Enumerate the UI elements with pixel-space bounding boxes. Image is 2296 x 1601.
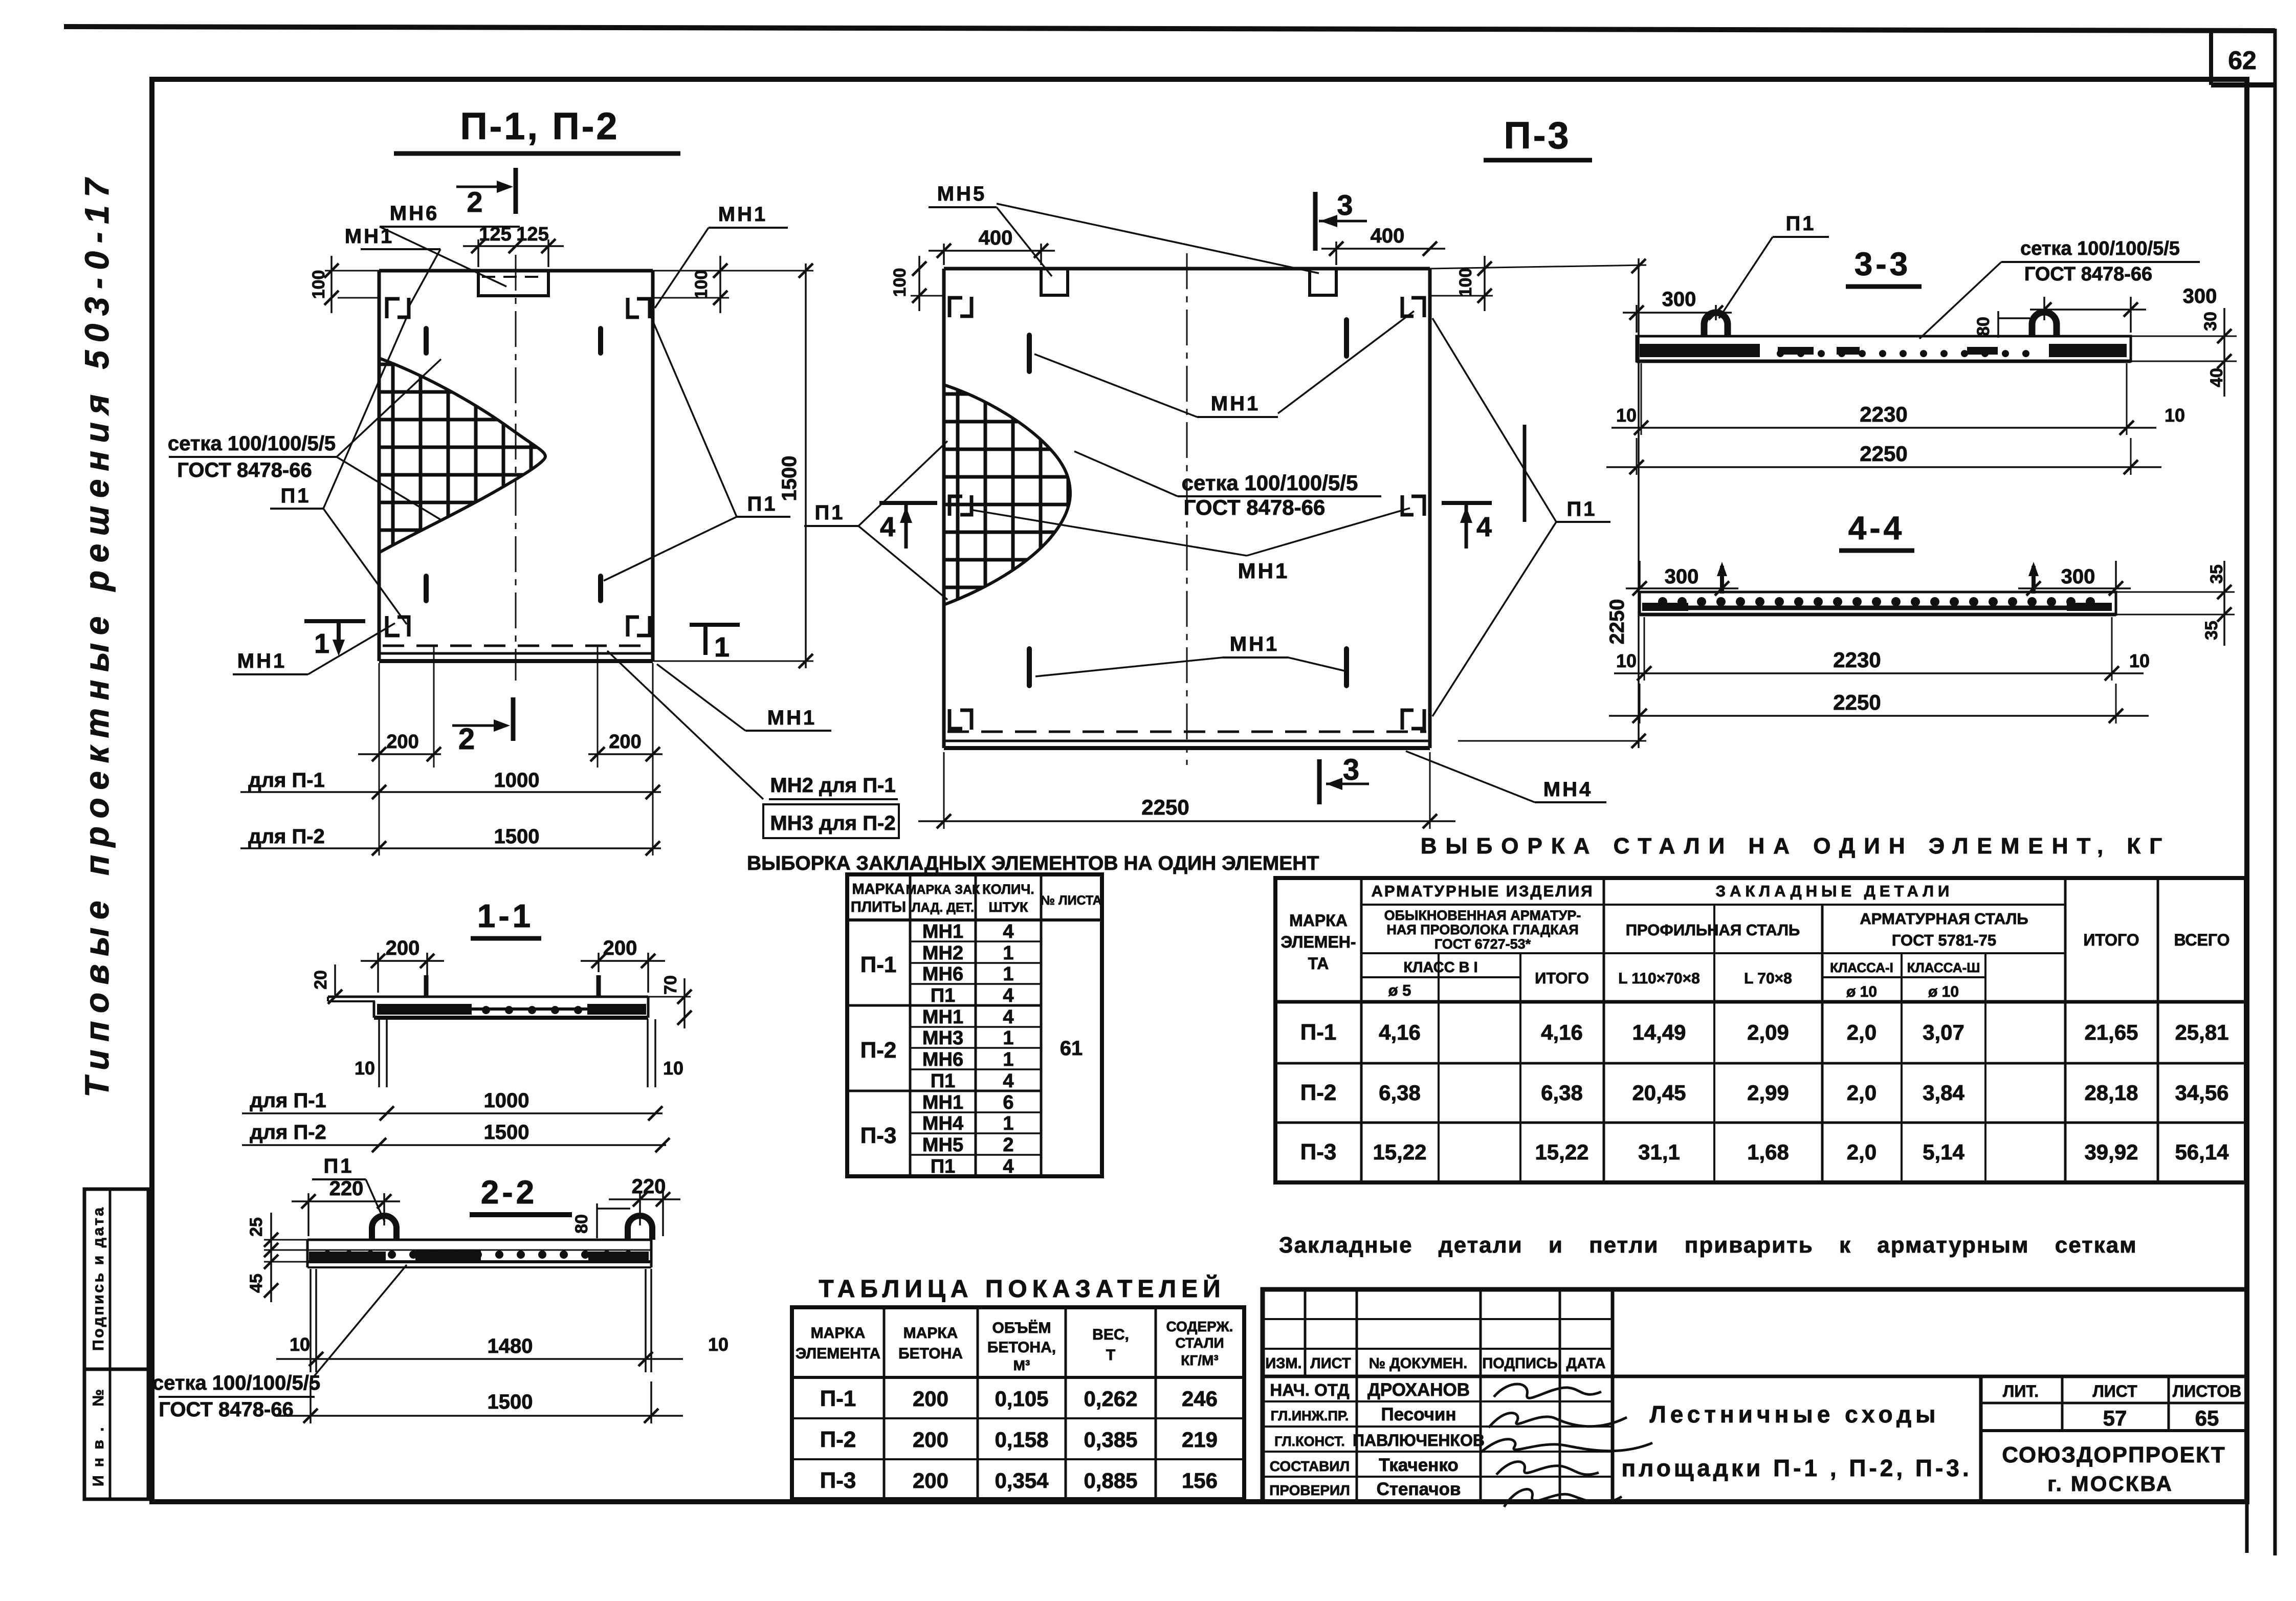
svg-text:ИТОГО: ИТОГО: [2083, 931, 2139, 949]
svg-text:МН1: МН1: [237, 650, 286, 672]
svg-text:ø 10: ø 10: [1846, 983, 1877, 1000]
svg-text:10: 10: [708, 1334, 728, 1355]
svg-text:45: 45: [247, 1274, 266, 1293]
svg-text:1500: 1500: [484, 1121, 529, 1144]
svg-text:ОБЫКНОВЕННАЯ АРМАТУР-: ОБЫКНОВЕННАЯ АРМАТУР-: [1384, 908, 1581, 923]
svg-text:300: 300: [1662, 288, 1696, 311]
svg-text:1000: 1000: [484, 1089, 529, 1112]
svg-text:ЛАД. ДЕТ.: ЛАД. ДЕТ.: [912, 901, 974, 915]
svg-text:МН1: МН1: [345, 225, 394, 248]
svg-text:2250: 2250: [1141, 795, 1189, 819]
svg-text:10: 10: [2165, 405, 2185, 426]
svg-text:1: 1: [1003, 1049, 1013, 1070]
svg-text:П-1: П-1: [820, 1386, 856, 1411]
svg-text:0,105: 0,105: [995, 1387, 1048, 1411]
svg-text:220: 220: [329, 1177, 364, 1200]
svg-text:300: 300: [1665, 565, 1699, 588]
svg-text:Т: Т: [1106, 1347, 1115, 1364]
svg-text:ПОДПИСЬ: ПОДПИСЬ: [1482, 1355, 1557, 1372]
svg-text:Подпись и дата: Подпись и дата: [90, 1208, 107, 1351]
svg-text:2,09: 2,09: [1747, 1020, 1789, 1044]
svg-text:МАРКА: МАРКА: [852, 881, 904, 897]
svg-text:1500: 1500: [488, 1391, 533, 1413]
svg-text:ЛИСТ: ЛИСТ: [1310, 1355, 1351, 1372]
svg-text:МН1: МН1: [1211, 392, 1260, 415]
svg-text:ГЛ.ИНЖ.ПР.: ГЛ.ИНЖ.ПР.: [1271, 1408, 1349, 1423]
svg-text:30: 30: [2201, 312, 2220, 331]
svg-text:ОБЪЁМ: ОБЪЁМ: [992, 1320, 1051, 1336]
svg-text:10: 10: [1616, 405, 1637, 426]
svg-text:1: 1: [1003, 1027, 1013, 1049]
svg-text:ø 5: ø 5: [1388, 981, 1411, 999]
svg-text:1500: 1500: [778, 456, 801, 501]
svg-text:П1: П1: [1567, 498, 1597, 520]
svg-text:МН4: МН4: [922, 1113, 963, 1134]
svg-text:25: 25: [247, 1217, 266, 1237]
svg-text:65: 65: [2195, 1406, 2219, 1430]
svg-text:МН6: МН6: [390, 202, 439, 225]
svg-text:МН1: МН1: [1238, 559, 1290, 583]
svg-text:6: 6: [1003, 1092, 1013, 1113]
svg-text:ЛИТ.: ЛИТ.: [2003, 1382, 2039, 1400]
svg-text:ЛИСТОВ: ЛИСТОВ: [2173, 1382, 2242, 1400]
svg-text:L 110×70×8: L 110×70×8: [1618, 970, 1700, 987]
svg-text:МН2 для П-1: МН2 для П-1: [770, 774, 895, 797]
svg-text:ГОСТ 6727-53*: ГОСТ 6727-53*: [1434, 936, 1531, 952]
svg-text:62: 62: [2228, 46, 2257, 75]
svg-text:П1: П1: [931, 985, 955, 1006]
svg-text:для П-1: для П-1: [250, 1089, 326, 1112]
svg-text:35: 35: [2202, 621, 2221, 640]
svg-text:1: 1: [314, 628, 329, 659]
svg-text:МАРКА ЗАК: МАРКА ЗАК: [906, 883, 981, 897]
svg-text:20,45: 20,45: [1632, 1081, 1686, 1105]
svg-text:ИТОГО: ИТОГО: [1535, 969, 1589, 987]
svg-text:ШТУК: ШТУК: [989, 900, 1028, 915]
svg-text:220: 220: [632, 1175, 666, 1198]
svg-text:300: 300: [2183, 285, 2217, 308]
svg-text:21,65: 21,65: [2084, 1020, 2138, 1044]
svg-text:ЗАКЛАДНЫЕ ДЕТАЛИ: ЗАКЛАДНЫЕ ДЕТАЛИ: [1716, 882, 1954, 900]
svg-text:1-1: 1-1: [477, 897, 534, 934]
svg-text:Лестничные сходы: Лестничные сходы: [1650, 1401, 1940, 1428]
svg-text:4: 4: [1003, 1156, 1013, 1177]
svg-text:2,0: 2,0: [1847, 1081, 1876, 1105]
svg-text:СОЮЗДОРПРОЕКТ: СОЮЗДОРПРОЕКТ: [2002, 1442, 2226, 1467]
svg-text:П1: П1: [324, 1155, 354, 1177]
svg-text:200: 200: [603, 937, 637, 959]
svg-text:300: 300: [2061, 565, 2095, 588]
svg-text:КГ/М³: КГ/М³: [1181, 1352, 1218, 1368]
svg-text:П-2: П-2: [860, 1038, 897, 1063]
svg-text:П-1: П-1: [1300, 1020, 1337, 1045]
svg-text:П-3: П-3: [1300, 1139, 1337, 1165]
svg-text:3: 3: [1337, 189, 1353, 221]
svg-text:4,16: 4,16: [1379, 1020, 1421, 1044]
svg-text:МН6: МН6: [922, 963, 963, 985]
svg-text:ТАБЛИЦА ПОКАЗАТЕЛЕЙ: ТАБЛИЦА ПОКАЗАТЕЛЕЙ: [819, 1275, 1225, 1303]
svg-text:МН1: МН1: [1230, 633, 1279, 655]
svg-text:5,14: 5,14: [1923, 1140, 1964, 1164]
svg-text:МН3: МН3: [922, 1027, 963, 1049]
svg-text:МН6: МН6: [922, 1049, 963, 1070]
svg-text:МАРКА: МАРКА: [903, 1325, 958, 1342]
svg-text:70: 70: [661, 975, 680, 995]
svg-text:МН3 для П-2: МН3 для П-2: [770, 812, 895, 835]
svg-text:МАРКА: МАРКА: [811, 1325, 866, 1342]
svg-text:для П-2: для П-2: [250, 1121, 326, 1144]
svg-text:200: 200: [609, 731, 641, 753]
svg-text:56,14: 56,14: [2175, 1140, 2229, 1164]
svg-text:1000: 1000: [494, 769, 540, 792]
svg-text:4: 4: [880, 512, 895, 542]
svg-text:2: 2: [458, 722, 475, 756]
svg-text:МАРКА: МАРКА: [1289, 911, 1348, 930]
svg-text:П-2: П-2: [1300, 1080, 1337, 1105]
svg-text:2230: 2230: [1860, 402, 1907, 426]
svg-text:0,262: 0,262: [1084, 1387, 1137, 1411]
svg-text:35: 35: [2207, 564, 2226, 584]
svg-text:ВЫБОРКА СТАЛИ НА ОДИН ЭЛЕМЕНТ: ВЫБОРКА СТАЛИ НА ОДИН ЭЛЕМЕНТ, КГ: [1421, 834, 2171, 859]
svg-text:КОЛИЧ.: КОЛИЧ.: [982, 882, 1034, 897]
svg-text:3: 3: [1343, 753, 1359, 786]
svg-text:МН4: МН4: [1543, 778, 1593, 801]
svg-text:4: 4: [1003, 1006, 1013, 1028]
svg-text:СОСТАВИЛ: СОСТАВИЛ: [1270, 1458, 1350, 1474]
svg-text:10: 10: [355, 1058, 375, 1079]
svg-text:10: 10: [290, 1334, 310, 1355]
svg-text:г. МОСКВА: г. МОСКВА: [2047, 1472, 2173, 1496]
svg-text:№ ЛИСТА: № ЛИСТА: [1041, 893, 1102, 908]
svg-text:10: 10: [1616, 650, 1637, 671]
svg-text:площадки П-1 , П-2, П-3.: площадки П-1 , П-2, П-3.: [1621, 1455, 1972, 1481]
svg-text:34,56: 34,56: [2175, 1081, 2228, 1105]
svg-text:ЭЛЕМЕН-: ЭЛЕМЕН-: [1281, 933, 1356, 951]
svg-text:П1: П1: [747, 493, 778, 515]
svg-text:ПЛИТЫ: ПЛИТЫ: [851, 899, 906, 915]
svg-text:ГОСТ 8478-66: ГОСТ 8478-66: [177, 459, 312, 481]
svg-text:14,49: 14,49: [1632, 1020, 1686, 1044]
svg-text:1: 1: [1003, 942, 1013, 964]
svg-text:200: 200: [913, 1387, 948, 1411]
svg-text:4,16: 4,16: [1541, 1020, 1583, 1044]
svg-text:ПАВЛЮЧЕНКОВ: ПАВЛЮЧЕНКОВ: [1353, 1431, 1485, 1450]
svg-text:сетка 100/100/5/5: сетка 100/100/5/5: [2020, 238, 2180, 259]
svg-text:4: 4: [1476, 512, 1492, 542]
svg-text:100: 100: [1456, 268, 1475, 297]
svg-text:ГЛ.КОНСТ.: ГЛ.КОНСТ.: [1274, 1434, 1345, 1449]
svg-text:4: 4: [1003, 985, 1013, 1006]
svg-text:2: 2: [1003, 1134, 1013, 1156]
svg-text:ИЗМ.: ИЗМ.: [1265, 1355, 1301, 1372]
svg-text:2,99: 2,99: [1747, 1081, 1789, 1105]
svg-text:П-3: П-3: [820, 1468, 856, 1493]
svg-text:400: 400: [1371, 225, 1405, 247]
svg-text:КЛАСС В I: КЛАСС В I: [1403, 959, 1477, 976]
svg-text:L 70×8: L 70×8: [1744, 970, 1792, 987]
svg-text:ГОСТ 8478-66: ГОСТ 8478-66: [159, 1398, 294, 1421]
svg-text:200: 200: [386, 731, 418, 753]
svg-text:ПРОВЕРИЛ: ПРОВЕРИЛ: [1269, 1482, 1350, 1498]
svg-text:40: 40: [2207, 368, 2226, 387]
svg-text:25,81: 25,81: [2175, 1020, 2228, 1044]
svg-text:0,158: 0,158: [995, 1428, 1048, 1452]
svg-text:15,22: 15,22: [1373, 1140, 1426, 1164]
svg-text:6,38: 6,38: [1541, 1081, 1583, 1105]
svg-text:2: 2: [467, 186, 482, 218]
svg-text:П1: П1: [815, 501, 845, 524]
svg-text:АРМАТУРНЫЕ ИЗДЕЛИЯ: АРМАТУРНЫЕ ИЗДЕЛИЯ: [1371, 882, 1594, 900]
svg-text:МН5: МН5: [922, 1134, 963, 1156]
svg-text:400: 400: [979, 227, 1013, 249]
svg-text:ø 10: ø 10: [1928, 983, 1959, 1000]
svg-text:2250: 2250: [1860, 442, 1907, 466]
svg-text:ЭЛЕМЕНТА: ЭЛЕМЕНТА: [796, 1345, 880, 1362]
svg-text:ГОСТ 8478-66: ГОСТ 8478-66: [1184, 495, 1326, 519]
svg-text:КЛАССА-I: КЛАССА-I: [1830, 960, 1893, 975]
svg-text:6,38: 6,38: [1379, 1081, 1421, 1105]
svg-text:3-3: 3-3: [1855, 246, 1911, 282]
svg-text:П1: П1: [931, 1070, 955, 1092]
svg-text:Ткаченко: Ткаченко: [1379, 1455, 1459, 1475]
svg-text:125: 125: [516, 224, 548, 245]
svg-text:ТА: ТА: [1308, 954, 1329, 973]
svg-text:200: 200: [386, 937, 420, 959]
svg-text:2250: 2250: [1833, 690, 1881, 714]
svg-text:ДРОХАНОВ: ДРОХАНОВ: [1367, 1380, 1470, 1400]
svg-text:П1: П1: [1786, 212, 1816, 235]
svg-text:100: 100: [890, 268, 910, 297]
svg-text:БЕТОНА,: БЕТОНА,: [987, 1339, 1056, 1356]
svg-text:200: 200: [913, 1428, 948, 1452]
svg-text:МН1: МН1: [922, 921, 963, 942]
svg-text:КЛАССА-Ш: КЛАССА-Ш: [1907, 960, 1980, 975]
svg-text:П-3: П-3: [1504, 114, 1571, 157]
svg-text:МН1: МН1: [767, 707, 816, 729]
svg-text:0,885: 0,885: [1084, 1468, 1137, 1493]
svg-text:№ ДОКУМЕН.: № ДОКУМЕН.: [1369, 1355, 1468, 1372]
svg-text:П1: П1: [281, 485, 311, 507]
svg-text:П-1, П-2: П-1, П-2: [460, 105, 619, 147]
svg-text:ВЫБОРКА ЗАКЛАДНЫХ ЭЛЕМЕНТОВ НА: ВЫБОРКА ЗАКЛАДНЫХ ЭЛЕМЕНТОВ НА ОДИН ЭЛЕМ…: [747, 852, 1319, 874]
svg-text:1: 1: [1003, 1113, 1013, 1134]
svg-text:ДАТА: ДАТА: [1566, 1355, 1606, 1372]
svg-text:61: 61: [1060, 1037, 1083, 1060]
svg-text:ГОСТ 8478-66: ГОСТ 8478-66: [2024, 264, 2152, 285]
svg-text:31,1: 31,1: [1638, 1140, 1680, 1164]
svg-text:П-1: П-1: [860, 952, 897, 977]
svg-text:2250: 2250: [1606, 599, 1628, 645]
svg-text:57: 57: [2103, 1406, 2127, 1430]
svg-text:3,84: 3,84: [1923, 1081, 1964, 1105]
svg-text:200: 200: [913, 1468, 948, 1493]
svg-text:1: 1: [1003, 963, 1013, 985]
svg-text:ПРОФИЛЬНАЯ СТАЛЬ: ПРОФИЛЬНАЯ СТАЛЬ: [1626, 921, 1800, 939]
svg-text:2-2: 2-2: [481, 1174, 538, 1211]
svg-text:100: 100: [309, 270, 328, 299]
svg-text:МН1: МН1: [922, 1092, 963, 1113]
svg-text:10: 10: [2129, 650, 2150, 671]
svg-text:0,354: 0,354: [995, 1468, 1049, 1493]
svg-text:сетка 100/100/5/5: сетка 100/100/5/5: [168, 432, 336, 455]
svg-text:П-2: П-2: [820, 1427, 856, 1452]
svg-text:ГОСТ 5781-75: ГОСТ 5781-75: [1892, 931, 1996, 949]
svg-text:Песочин: Песочин: [1381, 1405, 1456, 1424]
svg-text:Закладные детали и петли п: Закладные детали и петли приварить к арм…: [1279, 1233, 2137, 1258]
svg-text:сетка 100/100/5/5: сетка 100/100/5/5: [1182, 471, 1358, 495]
svg-text:4: 4: [1003, 921, 1013, 942]
svg-text:сетка 100/100/5/5: сетка 100/100/5/5: [152, 1372, 320, 1394]
svg-text:НАЯ ПРОВОЛОКА ГЛАДКАЯ: НАЯ ПРОВОЛОКА ГЛАДКАЯ: [1386, 922, 1578, 937]
svg-text:П1: П1: [931, 1156, 955, 1177]
svg-text:МН5: МН5: [937, 183, 986, 205]
svg-text:МН1: МН1: [718, 203, 767, 226]
svg-text:10: 10: [663, 1058, 683, 1079]
svg-text:156: 156: [1182, 1468, 1218, 1493]
svg-text:для П-2: для П-2: [248, 825, 325, 848]
svg-text:80: 80: [1974, 317, 1993, 336]
svg-text:СОДЕРЖ.: СОДЕРЖ.: [1166, 1319, 1233, 1334]
svg-text:ВСЕГО: ВСЕГО: [2174, 931, 2230, 949]
svg-text:НАЧ. ОТД: НАЧ. ОТД: [1270, 1380, 1349, 1399]
svg-text:П-3: П-3: [860, 1123, 897, 1148]
svg-text:Степачов: Степачов: [1377, 1479, 1461, 1499]
svg-text:ВЕС,: ВЕС,: [1092, 1326, 1129, 1343]
svg-text:2230: 2230: [1833, 648, 1881, 672]
svg-text:20: 20: [311, 970, 330, 990]
svg-text:БЕТОНА: БЕТОНА: [898, 1345, 963, 1362]
svg-text:для П-1: для П-1: [248, 769, 325, 792]
svg-text:ЛИСТ: ЛИСТ: [2092, 1382, 2137, 1400]
svg-text:39,92: 39,92: [2084, 1140, 2138, 1164]
svg-text:АРМАТУРНАЯ СТАЛЬ: АРМАТУРНАЯ СТАЛЬ: [1860, 910, 2028, 928]
svg-text:1: 1: [714, 632, 730, 663]
svg-text:2,0: 2,0: [1847, 1140, 1876, 1164]
svg-text:100: 100: [692, 270, 711, 299]
svg-text:1480: 1480: [488, 1335, 533, 1357]
svg-text:2,0: 2,0: [1847, 1020, 1876, 1044]
svg-text:28,18: 28,18: [2084, 1081, 2138, 1105]
svg-text:М³: М³: [1013, 1357, 1030, 1373]
svg-text:246: 246: [1182, 1387, 1218, 1411]
svg-text:4: 4: [1003, 1070, 1013, 1092]
svg-text:0,385: 0,385: [1084, 1428, 1137, 1452]
svg-text:1,68: 1,68: [1747, 1140, 1789, 1164]
svg-text:15,22: 15,22: [1535, 1140, 1588, 1164]
svg-text:4-4: 4-4: [1848, 510, 1905, 546]
svg-text:80: 80: [572, 1214, 591, 1234]
svg-text:1500: 1500: [494, 825, 540, 848]
svg-text:СТАЛИ: СТАЛИ: [1175, 1335, 1224, 1351]
svg-text:3,07: 3,07: [1923, 1020, 1964, 1044]
svg-text:МН2: МН2: [922, 942, 963, 964]
svg-text:219: 219: [1182, 1428, 1218, 1452]
svg-text:МН1: МН1: [922, 1006, 963, 1028]
